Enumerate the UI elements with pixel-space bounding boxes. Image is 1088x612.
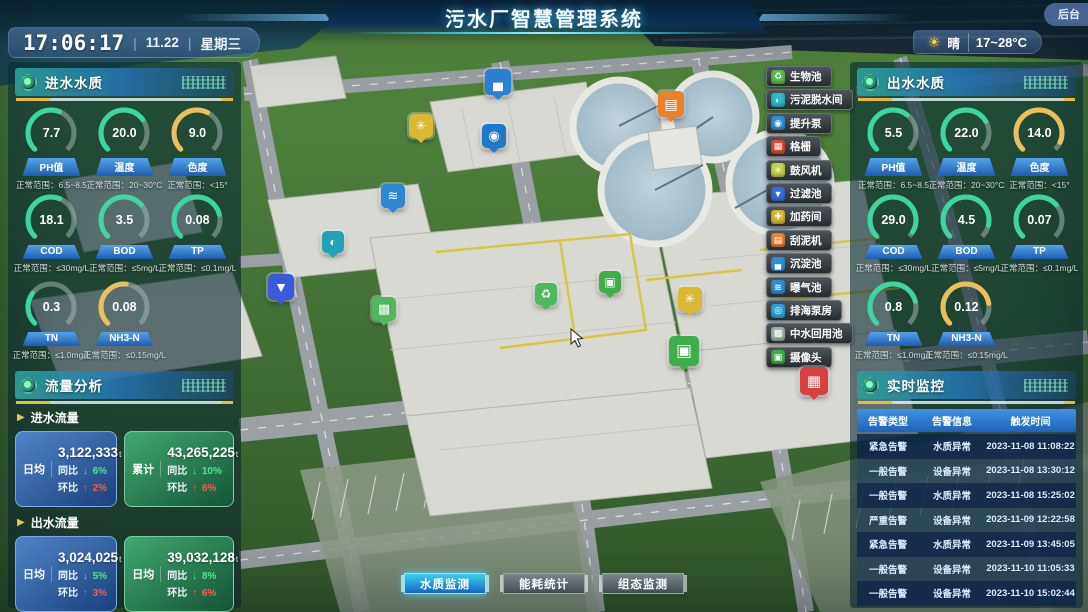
grille-marker[interactable]: ▦ bbox=[800, 367, 828, 395]
gauge-normal-range: 正常范围：≤0.1mg/L bbox=[159, 262, 237, 274]
marker-pointer bbox=[809, 395, 819, 405]
sludge-dewatering-marker[interactable]: ◐ bbox=[322, 231, 344, 253]
dot-grid-decor bbox=[182, 379, 226, 392]
outlet-gauges: 5.5 PH值 正常范围：6.5~8.5 22.0 温度 正常范围：20~30°… bbox=[857, 106, 1076, 367]
gauge-dial: 29.0 bbox=[861, 193, 925, 247]
marker-pointer bbox=[666, 117, 676, 127]
gauge-normal-range: 正常范围：20~30°C bbox=[87, 179, 163, 191]
flow-unit: t bbox=[119, 450, 121, 459]
marker-pointer bbox=[489, 148, 499, 158]
section-title: 进水水质 bbox=[45, 72, 103, 92]
arrow-down-icon: ↓ bbox=[192, 466, 197, 477]
gauge-label: NH3-N bbox=[95, 332, 153, 346]
divider: | bbox=[188, 35, 192, 51]
gauge-温度: 20.0 温度 正常范围：20~30°C bbox=[88, 106, 161, 193]
divider: | bbox=[133, 35, 137, 51]
flow-compare-row: 环比 ↑ 6% bbox=[167, 584, 227, 599]
gauge-value: 5.5 bbox=[861, 126, 925, 140]
gauge-TN: 0.3 TN 正常范围：≤1.0mg/L bbox=[15, 280, 88, 367]
gauge-dial: 4.5 bbox=[934, 193, 998, 247]
header-wing-left bbox=[176, 14, 331, 21]
flow-compare-value: 6% bbox=[93, 466, 107, 477]
section-underline bbox=[16, 401, 233, 404]
facility-button-曝气池[interactable]: ≋ 曝气池 bbox=[766, 277, 832, 298]
flow-value: 3,122,333t bbox=[58, 445, 110, 460]
gauge-BOD: 4.5 BOD 正常范围：≤5mg/L bbox=[930, 193, 1003, 280]
filter-pool-marker[interactable]: ▼ bbox=[268, 274, 294, 300]
alarm-info: 设备异常 bbox=[919, 562, 985, 576]
outlet-quality-header: 出水水质 bbox=[857, 68, 1076, 96]
facility-label: 生物池 bbox=[790, 69, 822, 84]
gauge-normal-range: 正常范围：20~30°C bbox=[929, 179, 1005, 191]
alarm-info: 水质异常 bbox=[919, 488, 985, 502]
gauge-dial: 0.8 bbox=[861, 280, 925, 334]
flow-unit: t bbox=[236, 555, 238, 564]
flow-compare-value: 6% bbox=[202, 483, 216, 494]
camera-marker-2[interactable]: ▣ bbox=[669, 336, 699, 366]
tab-水质监测[interactable]: 水质监测 bbox=[404, 573, 486, 594]
facility-label: 鼓风机 bbox=[790, 163, 822, 178]
flow-unit: t bbox=[236, 450, 238, 459]
arrow-up-icon: ↑ bbox=[83, 483, 88, 494]
gauge-NH3-N: 0.08 NH3-N 正常范围：≤0.15mg/L bbox=[88, 280, 161, 367]
flow-card-body: 39,032,128t 同比 ↓ 8%环比 ↑ 6% bbox=[167, 550, 227, 599]
alarm-column-header: 告警类型 bbox=[857, 413, 919, 428]
gauge-value: 0.8 bbox=[861, 300, 925, 314]
gauge-PH值: 7.7 PH值 正常范围：6.5~8.5 bbox=[15, 106, 88, 193]
mud-scraper-icon: ▤ bbox=[771, 233, 785, 247]
lift-pump-marker[interactable]: ◉ bbox=[482, 124, 506, 148]
section-dot-icon bbox=[20, 74, 37, 91]
facility-button-中水回用池[interactable]: ▩ 中水回用池 bbox=[766, 323, 853, 344]
alarm-row: 一般告警水质异常2023-11-08 15:25:02 bbox=[857, 483, 1076, 508]
gauge-normal-range: 正常范围：<15° bbox=[1009, 179, 1069, 191]
marker-pointer bbox=[493, 95, 503, 105]
sea-pump-icon: ◎ bbox=[771, 304, 785, 318]
gauge-normal-range: 正常范围：≤0.15mg/L bbox=[925, 349, 1008, 361]
gauge-value: 22.0 bbox=[934, 126, 998, 140]
flow-card-累计: 累计 43,265,225t 同比 ↓ 10%环比 ↑ 6% bbox=[124, 431, 234, 507]
gauge-value: 9.0 bbox=[165, 126, 229, 140]
gauge-NH3-N: 0.12 NH3-N 正常范围：≤0.15mg/L bbox=[930, 280, 1003, 367]
sedimentation-tank-marker[interactable]: ▄ bbox=[485, 69, 511, 95]
flow-card-日均: 日均 39,032,128t 同比 ↓ 8%环比 ↑ 6% bbox=[124, 536, 234, 612]
gauge-label: TP bbox=[168, 245, 226, 259]
flow-period-label: 日均 bbox=[23, 566, 52, 582]
gauge-value: 20.0 bbox=[92, 126, 156, 140]
gauge-温度: 22.0 温度 正常范围：20~30°C bbox=[930, 106, 1003, 193]
flow-group-label: ▶进水流量 bbox=[17, 409, 232, 426]
reclaimed-water-marker[interactable]: ▩ bbox=[372, 297, 396, 321]
alarm-row: 一般告警设备异常2023-11-10 11:05:33 bbox=[857, 557, 1076, 582]
gauge-label: BOD bbox=[95, 245, 153, 259]
alarm-row: 一般告警设备异常2023-11-08 13:30:12 bbox=[857, 459, 1076, 484]
marker-pointer bbox=[541, 305, 551, 315]
facility-label: 摄像头 bbox=[790, 350, 822, 365]
gauge-normal-range: 正常范围：≤1.0mg/L bbox=[13, 349, 91, 361]
gauge-normal-range: 正常范围：≤5mg/L bbox=[931, 262, 1002, 274]
gauge-value: 0.08 bbox=[165, 213, 229, 227]
camera-marker-1[interactable]: ▣ bbox=[599, 271, 621, 293]
clock-weekday: 星期三 bbox=[200, 33, 241, 53]
gauge-value: 0.12 bbox=[934, 300, 998, 314]
alarm-info: 设备异常 bbox=[919, 513, 985, 527]
gauge-dial: 0.08 bbox=[165, 193, 229, 247]
gauge-label: COD bbox=[22, 245, 80, 259]
dot-grid-decor bbox=[182, 76, 226, 89]
section-dot-icon bbox=[862, 377, 879, 394]
flow-period-label: 日均 bbox=[132, 566, 161, 582]
weather-condition: 晴 bbox=[947, 33, 969, 52]
arrow-up-icon: ↑ bbox=[83, 588, 88, 599]
gauge-dial: 0.08 bbox=[92, 280, 156, 334]
gauge-PH值: 5.5 PH值 正常范围：6.5~8.5 bbox=[857, 106, 930, 193]
flow-value: 3,024,025t bbox=[58, 550, 110, 565]
flow-compare-row: 同比 ↓ 6% bbox=[58, 462, 110, 477]
flow-compare-value: 2% bbox=[93, 483, 107, 494]
facility-label: 过滤池 bbox=[790, 186, 822, 201]
alarm-type: 一般告警 bbox=[857, 562, 919, 576]
gauge-dial: 0.3 bbox=[19, 280, 83, 334]
flow-group-label: ▶出水流量 bbox=[17, 514, 232, 531]
flow-card-body: 43,265,225t 同比 ↓ 10%环比 ↑ 6% bbox=[167, 445, 227, 494]
alarm-type: 一般告警 bbox=[857, 488, 919, 502]
section-underline bbox=[858, 98, 1075, 101]
gauge-dial: 9.0 bbox=[165, 106, 229, 160]
bottom-tabs: 水质监测能耗统计组态监测 bbox=[404, 573, 684, 594]
marker-pointer bbox=[679, 366, 689, 376]
gauge-dial: 0.12 bbox=[934, 280, 998, 334]
gauge-value: 0.07 bbox=[1007, 213, 1071, 227]
alarm-row: 紧急告警水质异常2023-11-08 11:08:22 bbox=[857, 434, 1076, 459]
facility-button-沉淀池[interactable]: ▄ 沉淀池 bbox=[766, 253, 832, 274]
grille-icon: ▦ bbox=[771, 140, 785, 154]
arrow-up-icon: ↑ bbox=[192, 483, 197, 494]
gauge-label: TN bbox=[22, 332, 80, 346]
dosing-room-icon: ✚ bbox=[771, 210, 785, 224]
gauge-dial: 18.1 bbox=[19, 193, 83, 247]
alarm-table-body: 紧急告警水质异常2023-11-08 11:08:22一般告警设备异常2023-… bbox=[857, 434, 1076, 606]
arrow-icon: ▶ bbox=[17, 517, 25, 528]
flow-card-日均: 日均 3,024,025t 同比 ↓ 5%环比 ↑ 3% bbox=[15, 536, 117, 612]
clock-bar: 17:06:17 | 11.22 | 星期三 bbox=[8, 27, 260, 58]
flow-compare-row: 环比 ↑ 2% bbox=[58, 479, 110, 494]
alarm-time: 2023-11-10 11:05:33 bbox=[985, 563, 1076, 574]
backstage-button[interactable]: 后台 bbox=[1044, 3, 1088, 26]
mud-scraper-marker[interactable]: ▤ bbox=[658, 91, 684, 117]
section-title: 出水水质 bbox=[887, 72, 945, 92]
alarm-time: 2023-11-09 13:45:05 bbox=[985, 539, 1076, 550]
alarm-row: 紧急告警水质异常2023-11-09 13:45:05 bbox=[857, 532, 1076, 557]
page-title: 污水厂智慧管理系统 bbox=[445, 3, 643, 32]
blower-icon: ✳ bbox=[771, 163, 785, 177]
gauge-normal-range: 正常范围：6.5~8.5 bbox=[858, 179, 929, 191]
gauge-label: 色度 bbox=[1010, 158, 1068, 176]
facility-button-格栅[interactable]: ▦ 格栅 bbox=[766, 136, 821, 157]
facility-label: 加药间 bbox=[790, 209, 822, 224]
facility-button-提升泵[interactable]: ◉ 提升泵 bbox=[766, 113, 832, 134]
gauge-TN: 0.8 TN 正常范围：≤1.0mg/L bbox=[857, 280, 930, 367]
gauge-label: PH值 bbox=[864, 158, 922, 176]
gauge-dial: 7.7 bbox=[19, 106, 83, 160]
bio-pool-marker[interactable]: ♻ bbox=[535, 283, 557, 305]
facility-label: 沉淀池 bbox=[790, 256, 822, 271]
gauge-label: TN bbox=[864, 332, 922, 346]
gauge-value: 4.5 bbox=[934, 213, 998, 227]
clock-time: 17:06:17 bbox=[23, 31, 124, 55]
facility-button-污泥脱水间[interactable]: ◐ 污泥脱水间 bbox=[766, 89, 853, 110]
flow-compare-value: 5% bbox=[93, 571, 107, 582]
facility-label: 刮泥机 bbox=[790, 233, 822, 248]
gauge-normal-range: 正常范围：≤1.0mg/L bbox=[855, 349, 933, 361]
facility-button-过滤池[interactable]: ▼ 过滤池 bbox=[766, 183, 832, 204]
arrow-down-icon: ↓ bbox=[192, 571, 197, 582]
aeration-icon: ≋ bbox=[771, 280, 785, 294]
alarm-time: 2023-11-10 15:02:44 bbox=[985, 588, 1076, 599]
gauge-label: NH3-N bbox=[937, 332, 995, 346]
marker-pointer bbox=[416, 138, 426, 148]
flow-period-label: 累计 bbox=[132, 461, 161, 477]
alarm-info: 水质异常 bbox=[919, 439, 985, 453]
gauge-normal-range: 正常范围：≤5mg/L bbox=[89, 262, 160, 274]
alarm-column-header: 告警信息 bbox=[919, 413, 985, 428]
realtime-monitor-header: 实时监控 bbox=[857, 371, 1076, 399]
gauge-TP: 0.08 TP 正常范围：≤0.1mg/L bbox=[161, 193, 234, 280]
clock-date: 11.22 bbox=[146, 35, 179, 50]
flow-compare-value: 8% bbox=[202, 571, 216, 582]
flow-card-row: 日均 3,122,333t 同比 ↓ 6%环比 ↑ 2% 累计 43,265,2… bbox=[15, 431, 234, 507]
header-wing-right bbox=[758, 14, 913, 21]
gauge-value: 14.0 bbox=[1007, 126, 1071, 140]
facility-label: 中水回用池 bbox=[790, 326, 843, 341]
gauge-COD: 18.1 COD 正常范围：≤30mg/L bbox=[15, 193, 88, 280]
weather-bar: ☀ 晴 17~28°C bbox=[913, 30, 1042, 54]
inlet-gauges: 7.7 PH值 正常范围：6.5~8.5 20.0 温度 正常范围：20~30°… bbox=[15, 106, 234, 367]
flow-compare-value: 3% bbox=[93, 588, 107, 599]
alarm-time: 2023-11-08 11:08:22 bbox=[985, 441, 1076, 452]
arrow-down-icon: ↓ bbox=[83, 571, 88, 582]
facility-label: 提升泵 bbox=[790, 116, 822, 131]
inlet-panel: 进水水质 7.7 PH值 正常范围：6.5~8.5 20.0 bbox=[8, 62, 241, 608]
marker-pointer bbox=[685, 311, 695, 321]
gauge-label: 色度 bbox=[168, 158, 226, 176]
section-dot-icon bbox=[20, 377, 37, 394]
marker-pointer bbox=[605, 293, 615, 303]
dashboard-root: 污水厂智慧管理系统 后台 17:06:17 | 11.22 | 星期三 ☀ 晴 … bbox=[0, 0, 1088, 612]
flow-compare-row: 环比 ↑ 6% bbox=[167, 479, 227, 494]
sedimentation-icon: ▄ bbox=[771, 257, 785, 271]
facility-label: 格栅 bbox=[790, 139, 811, 154]
facility-button-摄像头[interactable]: ▣ 摄像头 bbox=[766, 347, 832, 368]
alarm-type: 严重告警 bbox=[857, 513, 919, 527]
section-title: 流量分析 bbox=[45, 375, 103, 395]
facility-button-生物池[interactable]: ♻ 生物池 bbox=[766, 66, 832, 87]
facility-label: 污泥脱水间 bbox=[790, 92, 843, 107]
alarm-type: 一般告警 bbox=[857, 586, 919, 600]
flow-compare-row: 同比 ↓ 5% bbox=[58, 567, 110, 582]
gauge-value: 0.3 bbox=[19, 300, 83, 314]
gauge-色度: 9.0 色度 正常范围：<15° bbox=[161, 106, 234, 193]
flow-compare-value: 6% bbox=[202, 588, 216, 599]
gauge-BOD: 3.5 BOD 正常范围：≤5mg/L bbox=[88, 193, 161, 280]
filter-pool-icon: ▼ bbox=[771, 187, 785, 201]
facility-label: 排海泵房 bbox=[790, 303, 832, 318]
weather-temp-range: 17~28°C bbox=[976, 35, 1027, 50]
alarm-column-header: 触发时间 bbox=[985, 413, 1076, 428]
facility-button-刮泥机[interactable]: ▤ 刮泥机 bbox=[766, 230, 832, 251]
flow-value: 39,032,128t bbox=[167, 550, 227, 565]
gauge-dial: 14.0 bbox=[1007, 106, 1071, 160]
bio-pool-icon: ♻ bbox=[771, 70, 785, 84]
outlet-panel: 出水水质 5.5 PH值 正常范围：6.5~8.5 22.0 bbox=[850, 62, 1083, 608]
blower-marker[interactable]: ✳ bbox=[409, 114, 433, 138]
flow-card-row: 日均 3,024,025t 同比 ↓ 5%环比 ↑ 3% 日均 39,032,1… bbox=[15, 536, 234, 612]
reclaimed-water-icon: ▩ bbox=[771, 327, 785, 341]
blower-marker-2[interactable]: ✳ bbox=[678, 287, 702, 311]
dot-grid-decor bbox=[1024, 379, 1068, 392]
gauge-normal-range: 正常范围：6.5~8.5 bbox=[16, 179, 87, 191]
gauge-label: 温度 bbox=[937, 158, 995, 176]
alarm-time: 2023-11-09 12:22:58 bbox=[985, 514, 1076, 525]
marker-pointer bbox=[379, 321, 389, 331]
arrow-down-icon: ↓ bbox=[83, 466, 88, 477]
marker-pointer bbox=[328, 253, 338, 263]
gauge-dial: 3.5 bbox=[92, 193, 156, 247]
flow-compare-value: 10% bbox=[202, 466, 222, 477]
section-underline bbox=[16, 98, 233, 101]
facility-label: 曝气池 bbox=[790, 280, 822, 295]
alarm-info: 设备异常 bbox=[919, 464, 985, 478]
gauge-value: 3.5 bbox=[92, 213, 156, 227]
flow-compare-row: 同比 ↓ 8% bbox=[167, 567, 227, 582]
alarm-info: 水质异常 bbox=[919, 537, 985, 551]
gauge-normal-range: 正常范围：<15° bbox=[167, 179, 227, 191]
sun-icon: ☀ bbox=[928, 34, 941, 51]
flow-card-body: 3,122,333t 同比 ↓ 6%环比 ↑ 2% bbox=[58, 445, 110, 494]
camera-icon: ▣ bbox=[771, 350, 785, 364]
facility-button-加药间[interactable]: ✚ 加药间 bbox=[766, 206, 832, 227]
tab-组态监测[interactable]: 组态监测 bbox=[602, 573, 684, 594]
alarm-type: 紧急告警 bbox=[857, 537, 919, 551]
section-underline bbox=[858, 401, 1075, 404]
arrow-up-icon: ↑ bbox=[192, 588, 197, 599]
aeration-pool-marker[interactable]: ≋ bbox=[381, 184, 405, 208]
gauge-value: 18.1 bbox=[19, 213, 83, 227]
alarm-table-header: 告警类型告警信息触发时间 bbox=[857, 409, 1076, 432]
alarm-type: 一般告警 bbox=[857, 464, 919, 478]
alarm-info: 设备异常 bbox=[919, 586, 985, 600]
gauge-label: PH值 bbox=[22, 158, 80, 176]
alarm-row: 一般告警设备异常2023-11-10 15:02:44 bbox=[857, 581, 1076, 606]
alarm-row: 严重告警设备异常2023-11-09 12:22:58 bbox=[857, 508, 1076, 533]
gauge-normal-range: 正常范围：≤0.1mg/L bbox=[1001, 262, 1079, 274]
flow-unit: t bbox=[119, 555, 121, 564]
flow-analysis-header: 流量分析 bbox=[15, 371, 234, 399]
gauge-dial: 0.07 bbox=[1007, 193, 1071, 247]
gauge-label: 温度 bbox=[95, 158, 153, 176]
flow-groups: ▶进水流量 日均 3,122,333t 同比 ↓ 6%环比 ↑ 2% 累计 43… bbox=[15, 409, 234, 612]
gauge-dial: 22.0 bbox=[934, 106, 998, 160]
gauge-dial: 5.5 bbox=[861, 106, 925, 160]
gauge-TP: 0.07 TP 正常范围：≤0.1mg/L bbox=[1003, 193, 1076, 280]
dot-grid-decor bbox=[1024, 76, 1068, 89]
lift-pump-icon: ◉ bbox=[771, 116, 785, 130]
section-title: 实时监控 bbox=[887, 375, 945, 395]
flow-period-label: 日均 bbox=[23, 461, 52, 477]
marker-pointer bbox=[388, 208, 398, 218]
gauge-dial: 20.0 bbox=[92, 106, 156, 160]
flow-compare-row: 环比 ↑ 3% bbox=[58, 584, 110, 599]
flow-value: 43,265,225t bbox=[167, 445, 227, 460]
facility-button-鼓风机[interactable]: ✳ 鼓风机 bbox=[766, 160, 832, 181]
inlet-quality-header: 进水水质 bbox=[15, 68, 234, 96]
marker-pointer bbox=[276, 300, 286, 310]
alarm-type: 紧急告警 bbox=[857, 439, 919, 453]
alarm-time: 2023-11-08 13:30:12 bbox=[985, 465, 1076, 476]
gauge-label: BOD bbox=[937, 245, 995, 259]
flow-card-日均: 日均 3,122,333t 同比 ↓ 6%环比 ↑ 2% bbox=[15, 431, 117, 507]
gauge-normal-range: 正常范围：≤30mg/L bbox=[856, 262, 932, 274]
gauge-label: COD bbox=[864, 245, 922, 259]
gauge-normal-range: 正常范围：≤0.15mg/L bbox=[83, 349, 166, 361]
alarm-time: 2023-11-08 15:25:02 bbox=[985, 490, 1076, 501]
gauge-value: 29.0 bbox=[861, 213, 925, 227]
facility-button-排海泵房[interactable]: ◎ 排海泵房 bbox=[766, 300, 842, 321]
sludge-dewatering-icon: ◐ bbox=[771, 93, 785, 107]
flow-compare-row: 同比 ↓ 10% bbox=[167, 462, 227, 477]
arrow-icon: ▶ bbox=[17, 412, 25, 423]
header-banner: 污水厂智慧管理系统 bbox=[321, 0, 767, 34]
flow-card-body: 3,024,025t 同比 ↓ 5%环比 ↑ 3% bbox=[58, 550, 110, 599]
gauge-COD: 29.0 COD 正常范围：≤30mg/L bbox=[857, 193, 930, 280]
gauge-normal-range: 正常范围：≤30mg/L bbox=[14, 262, 90, 274]
gauge-value: 7.7 bbox=[19, 126, 83, 140]
gauge-label: TP bbox=[1010, 245, 1068, 259]
section-dot-icon bbox=[862, 74, 879, 91]
tab-能耗统计[interactable]: 能耗统计 bbox=[503, 573, 585, 594]
gauge-色度: 14.0 色度 正常范围：<15° bbox=[1003, 106, 1076, 193]
gauge-value: 0.08 bbox=[92, 300, 156, 314]
